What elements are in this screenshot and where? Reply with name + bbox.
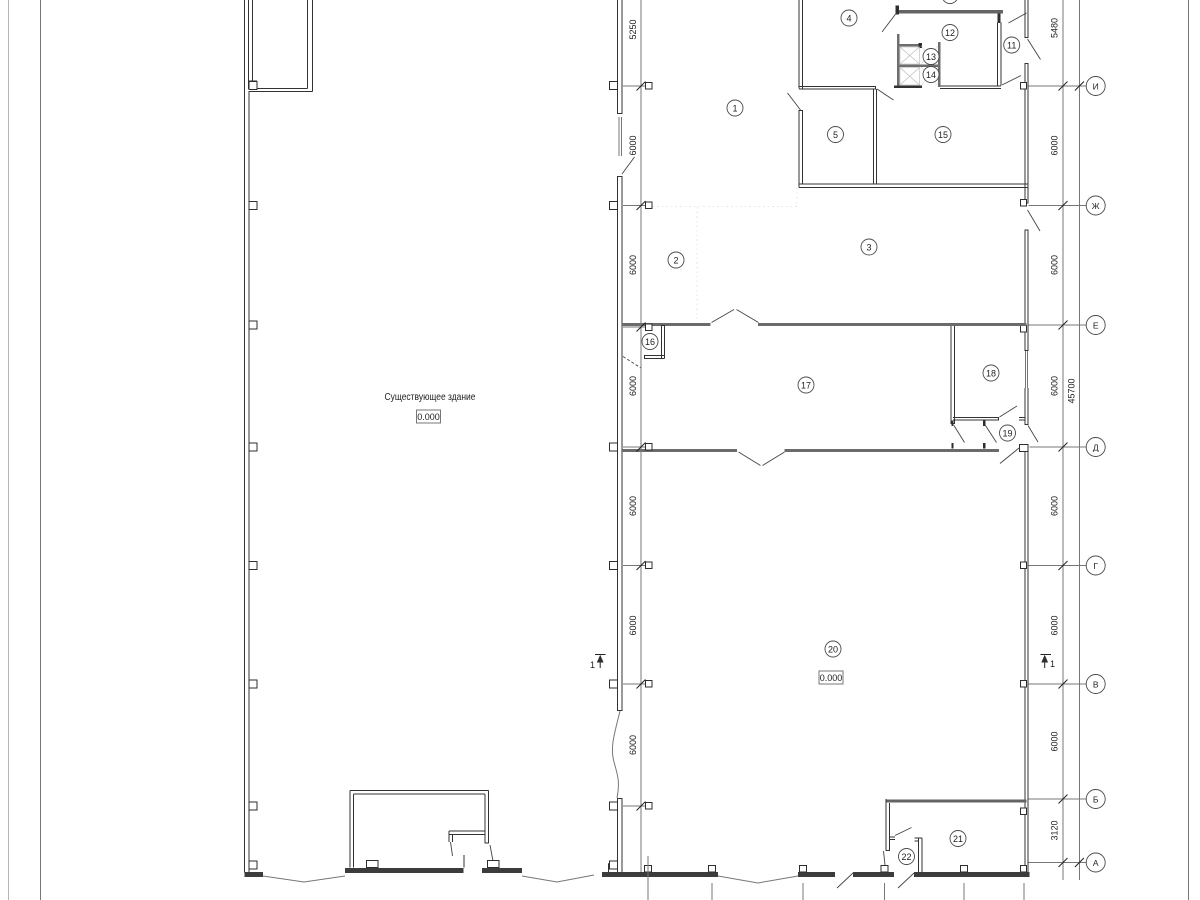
svg-text:0.000: 0.000 xyxy=(417,412,440,422)
svg-text:4: 4 xyxy=(846,14,851,24)
svg-text:6000: 6000 xyxy=(1050,135,1060,155)
svg-text:6000: 6000 xyxy=(628,135,638,155)
svg-text:6000: 6000 xyxy=(628,255,638,275)
svg-text:6000: 6000 xyxy=(1050,376,1060,396)
svg-text:3: 3 xyxy=(866,243,871,253)
svg-text:6000: 6000 xyxy=(628,376,638,396)
svg-text:1: 1 xyxy=(1050,659,1055,669)
svg-text:13: 13 xyxy=(926,52,936,62)
svg-text:1: 1 xyxy=(590,660,595,670)
svg-text:5480: 5480 xyxy=(1050,18,1060,38)
svg-text:А: А xyxy=(1093,858,1099,868)
svg-text:Б: Б xyxy=(1093,795,1099,805)
svg-text:45700: 45700 xyxy=(1067,378,1077,403)
svg-text:17: 17 xyxy=(801,381,811,391)
svg-text:Д: Д xyxy=(1093,443,1099,453)
svg-text:20: 20 xyxy=(828,645,838,655)
svg-text:6000: 6000 xyxy=(1050,255,1060,275)
svg-text:6000: 6000 xyxy=(628,615,638,635)
svg-text:В: В xyxy=(1093,680,1099,690)
svg-text:Г: Г xyxy=(1093,561,1098,571)
svg-text:3120: 3120 xyxy=(1050,820,1060,840)
svg-text:6000: 6000 xyxy=(628,496,638,516)
svg-text:6000: 6000 xyxy=(1050,496,1060,516)
svg-text:21: 21 xyxy=(953,834,963,844)
svg-text:11: 11 xyxy=(1007,41,1016,51)
svg-text:2: 2 xyxy=(673,256,678,266)
svg-text:1: 1 xyxy=(732,104,737,114)
svg-text:19: 19 xyxy=(1002,429,1012,439)
svg-text:15: 15 xyxy=(938,130,948,140)
svg-text:И: И xyxy=(1093,82,1099,92)
svg-text:5: 5 xyxy=(833,130,838,140)
svg-text:Существующее здание: Существующее здание xyxy=(385,392,476,403)
svg-text:6000: 6000 xyxy=(628,735,638,755)
svg-text:Е: Е xyxy=(1093,321,1099,331)
svg-text:16: 16 xyxy=(645,337,655,347)
svg-text:12: 12 xyxy=(945,28,955,38)
svg-text:Ж: Ж xyxy=(1092,201,1100,211)
svg-text:6000: 6000 xyxy=(1050,731,1060,751)
svg-text:14: 14 xyxy=(926,70,936,80)
svg-text:18: 18 xyxy=(986,369,996,379)
svg-text:22: 22 xyxy=(901,852,911,862)
svg-text:0.000: 0.000 xyxy=(820,673,843,683)
svg-text:5250: 5250 xyxy=(628,19,638,39)
svg-text:6000: 6000 xyxy=(1050,615,1060,635)
